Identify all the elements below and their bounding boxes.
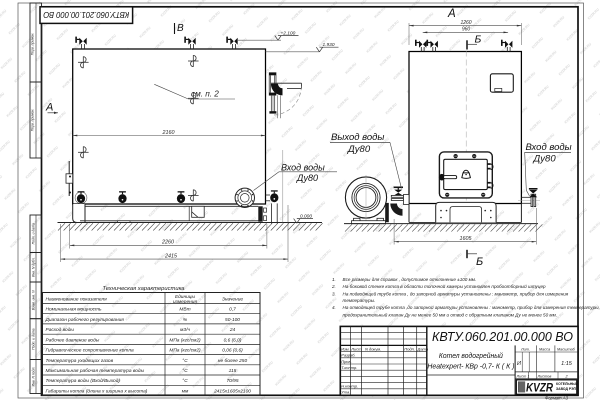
svg-text:На боковой стенке котла в обла: На боковой стенке котла в области топочн… (343, 283, 547, 289)
svg-text:3.: 3. (332, 291, 336, 296)
svg-text:Максимальная рабочая температу: Максимальная рабочая температура воды (46, 368, 145, 374)
svg-text:Ду80: Ду80 (533, 153, 557, 164)
svg-text:0,7: 0,7 (229, 307, 236, 313)
svg-text:мм: мм (182, 390, 189, 395)
svg-text:Габариты котла (длина х ширина: Габариты котла (длина х ширина х высота) (46, 389, 148, 395)
svg-text:А: А (45, 102, 53, 114)
svg-text:А: А (447, 8, 456, 20)
svg-text:Пров.: Пров. (341, 359, 352, 364)
svg-text:N докум.: N докум. (365, 346, 381, 351)
svg-text:Диапазон рабочего регулировани: Диапазон рабочего регулирования (45, 317, 125, 323)
svg-text:2260: 2260 (161, 240, 174, 246)
svg-text:KVZR: KVZR (526, 383, 554, 395)
svg-text:115: 115 (229, 368, 237, 374)
svg-text:В: В (177, 23, 184, 34)
svg-text:Техническая характеристика: Техническая характеристика (102, 286, 185, 292)
svg-text:м3/ч: м3/ч (180, 327, 190, 333)
svg-text:МПа (кгс/см2): МПа (кгс/см2) (169, 348, 201, 354)
svg-text:1605: 1605 (460, 236, 473, 242)
svg-text:Рабочее давление воды: Рабочее давление воды (46, 337, 100, 343)
svg-text:2160: 2160 (162, 130, 175, 136)
svg-text:И: И (517, 361, 521, 367)
svg-text:МПа (кгс/см2): МПа (кгс/см2) (169, 337, 201, 343)
svg-text:Расход воды: Расход воды (46, 327, 75, 333)
svg-text:%: % (183, 317, 188, 323)
svg-text:4.: 4. (332, 305, 336, 310)
svg-text:Ду80: Ду80 (347, 144, 371, 155)
svg-text:Все размеры для справок , допу: Все размеры для справок , допустимое отк… (343, 277, 477, 282)
svg-text:24: 24 (229, 327, 236, 333)
svg-text:1:15: 1:15 (561, 361, 573, 367)
svg-text:ЗАВОД РЭП: ЗАВОД РЭП (556, 387, 577, 391)
svg-text:°С: °С (182, 358, 188, 364)
svg-text:Н.контр.: Н.контр. (341, 384, 358, 389)
svg-text:Масса: Масса (539, 347, 550, 351)
svg-text:1.930: 1.930 (323, 42, 335, 48)
svg-text:Лист 1: Лист 1 (516, 374, 530, 378)
svg-text:1260: 1260 (460, 20, 471, 26)
svg-text:Вход воды: Вход воды (281, 162, 325, 172)
svg-text:2415х1605х2100: 2415х1605х2100 (213, 389, 251, 395)
svg-text:Взам. инв. N: Взам. инв. N (32, 290, 36, 310)
svg-text:Б: Б (475, 34, 482, 46)
svg-text:1.: 1. (332, 277, 336, 282)
svg-text:температуры.: температуры. (343, 298, 376, 303)
svg-text:Подп. и дата: Подп. и дата (32, 223, 36, 244)
svg-text:Гидравлическое сопротивление к: Гидравлическое сопротивление котла (46, 348, 134, 354)
svg-text:+2.100: +2.100 (281, 30, 296, 36)
svg-text:Котел водогрейный: Котел водогрейный (439, 352, 503, 360)
svg-text:Температура воды (Вход/Выход): Температура воды (Вход/Выход) (46, 378, 121, 384)
svg-text:Перв. примен.: Перв. примен. (30, 33, 34, 56)
svg-text:Инв. N дубл.: Инв. N дубл. (32, 257, 36, 277)
svg-text:Подп.: Подп. (404, 346, 415, 351)
svg-text:Перв. примен.: Перв. примен. (30, 109, 34, 132)
svg-text:2.: 2. (331, 284, 336, 289)
svg-text:Инв. N подл.: Инв. N подл. (32, 367, 36, 387)
svg-text:Значение: Значение (222, 297, 243, 303)
svg-text:КОТЕЛЬНЫЙ: КОТЕЛЬНЫЙ (556, 382, 579, 386)
svg-text:Разраб.: Разраб. (341, 353, 355, 358)
svg-text:Т.контр.: Т.контр. (341, 365, 357, 370)
svg-text:°С: °С (182, 368, 188, 374)
svg-text:Лист: Лист (350, 346, 362, 351)
svg-text:°С: °С (182, 378, 188, 384)
svg-text:предохранительный клапан Ду н: предохранительный клапан Ду не менее 50 … (343, 311, 558, 317)
svg-text:измерения: измерения (173, 300, 197, 305)
svg-text:На отводящей трубе котла ,до з: На отводящей трубе котла ,до запорной ар… (343, 304, 600, 310)
svg-text:Подп. и дата: Подп. и дата (32, 328, 36, 349)
svg-text:Лит.: Лит. (520, 347, 530, 351)
svg-text:Выход воды: Выход воды (331, 132, 384, 143)
svg-text:70/95: 70/95 (226, 378, 238, 384)
svg-text:2415: 2415 (164, 253, 178, 259)
svg-text:Температура уходящих газов: Температура уходящих газов (46, 358, 114, 364)
svg-text:МВт: МВт (179, 307, 190, 313)
svg-text:Утв.: Утв. (341, 390, 350, 395)
svg-text:Формат А3: Формат А3 (545, 396, 569, 400)
svg-text:0.000: 0.000 (300, 213, 312, 219)
svg-text:На подводящей трубе котла ,: На подводящей трубе котла , до запорной … (343, 290, 569, 296)
svg-text:Б: Б (476, 256, 483, 268)
svg-text:см. п. 2: см. п. 2 (191, 90, 219, 99)
svg-text:Heatexpert- КВр -0,7- К ( К ): Heatexpert- КВр -0,7- К ( К ) (427, 364, 514, 371)
svg-text:0,6 (6,0): 0,6 (6,0) (224, 337, 242, 343)
svg-text:Вход воды: Вход воды (526, 142, 572, 153)
svg-text:Дата: Дата (417, 346, 429, 351)
svg-text:Наименование показателя: Наименование показателя (46, 297, 108, 303)
svg-text:Изм.: Изм. (341, 346, 350, 351)
svg-text:КВТУ.060.201.00.000 ВО: КВТУ.060.201.00.000 ВО (432, 330, 573, 344)
svg-text:Ду80: Ду80 (296, 173, 318, 183)
svg-text:0,06 (0,6): 0,06 (0,6) (222, 348, 243, 354)
svg-text:50-100: 50-100 (225, 317, 240, 323)
svg-text:Листов: Листов (537, 374, 552, 378)
svg-text:Номинальная мощность: Номинальная мощность (46, 307, 103, 313)
svg-text:КВТУ.060.201.00.000 ВО: КВТУ.060.201.00.000 ВО (43, 10, 129, 19)
svg-text:не более 250: не более 250 (218, 358, 248, 364)
svg-text:Масштаб: Масштаб (557, 347, 576, 351)
svg-text:960: 960 (462, 27, 471, 33)
